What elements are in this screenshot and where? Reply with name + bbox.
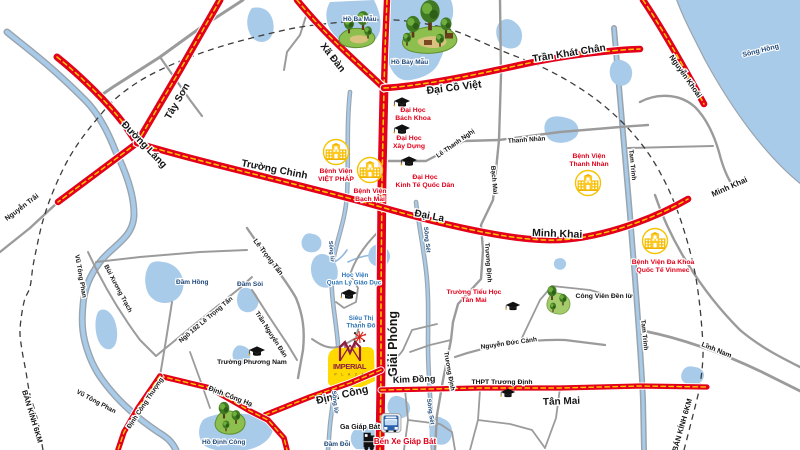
svg-text:Đại Học: Đại Học xyxy=(412,174,438,181)
svg-text:Minh Khai: Minh Khai xyxy=(532,227,583,241)
svg-text:Hồ Bảy Mẫu: Hồ Bảy Mẫu xyxy=(391,57,428,66)
svg-text:Bệnh Viện: Bệnh Viện xyxy=(572,153,605,160)
svg-text:Bến Xe Giáp Bát: Bến Xe Giáp Bát xyxy=(374,437,437,446)
svg-text:Đại Học: Đại Học xyxy=(400,107,426,114)
svg-text:Đầm Đỗi: Đầm Đỗi xyxy=(324,439,351,448)
svg-text:Bách Khoa: Bách Khoa xyxy=(395,115,431,122)
svg-text:Kinh Tế Quốc Dân: Kinh Tế Quốc Dân xyxy=(396,181,455,189)
svg-text:Quốc Tế Vinmec: Quốc Tế Vinmec xyxy=(636,266,689,274)
svg-text:Tân Mai: Tân Mai xyxy=(543,396,581,408)
svg-text:Quản Lý Giáo Dục: Quản Lý Giáo Dục xyxy=(327,280,382,287)
svg-text:Tân Mai: Tân Mai xyxy=(461,297,486,304)
svg-text:Giải Phóng: Giải Phóng xyxy=(386,311,400,377)
svg-text:Ga Giáp Bát: Ga Giáp Bát xyxy=(340,424,381,431)
svg-text:Học Viện: Học Viện xyxy=(342,272,369,279)
svg-text:Kim Đồng: Kim Đồng xyxy=(393,374,436,385)
svg-text:Đại Học: Đại Học xyxy=(396,135,422,142)
svg-text:Đầm Sòi: Đầm Sòi xyxy=(237,279,263,288)
svg-text:Thành Đô: Thành Đô xyxy=(346,323,375,330)
svg-text:VIỆT PHÁP: VIỆT PHÁP xyxy=(318,174,354,183)
svg-text:P L A Z A: P L A Z A xyxy=(334,372,366,377)
svg-text:Trường Tiểu Học: Trường Tiểu Học xyxy=(447,288,502,296)
svg-text:Xây Dựng: Xây Dựng xyxy=(393,143,425,150)
svg-text:Bạch Mai: Bạch Mai xyxy=(355,196,385,203)
svg-text:Bệnh Viện: Bệnh Viện xyxy=(353,188,386,195)
svg-text:Hồ Định Công: Hồ Định Công xyxy=(202,437,245,446)
svg-text:Đầm Hồng: Đầm Hồng xyxy=(176,277,209,286)
svg-text:Siêu Thị: Siêu Thị xyxy=(349,315,374,322)
svg-text:IMPERIAL: IMPERIAL xyxy=(333,362,367,371)
svg-text:THPT Trương Định: THPT Trương Định xyxy=(471,379,532,386)
svg-text:Trường Phương Nam: Trường Phương Nam xyxy=(217,359,287,366)
svg-text:Hồ Ba Mẫu: Hồ Ba Mẫu xyxy=(343,14,377,23)
svg-text:Công Viên Đền lừ: Công Viên Đền lừ xyxy=(576,291,633,300)
svg-text:Bệnh Viện Đa Khoa: Bệnh Viện Đa Khoa xyxy=(632,259,695,266)
svg-text:Thanh Nhàn: Thanh Nhàn xyxy=(569,161,608,168)
svg-text:Bệnh Viện: Bệnh Viện xyxy=(319,168,352,175)
